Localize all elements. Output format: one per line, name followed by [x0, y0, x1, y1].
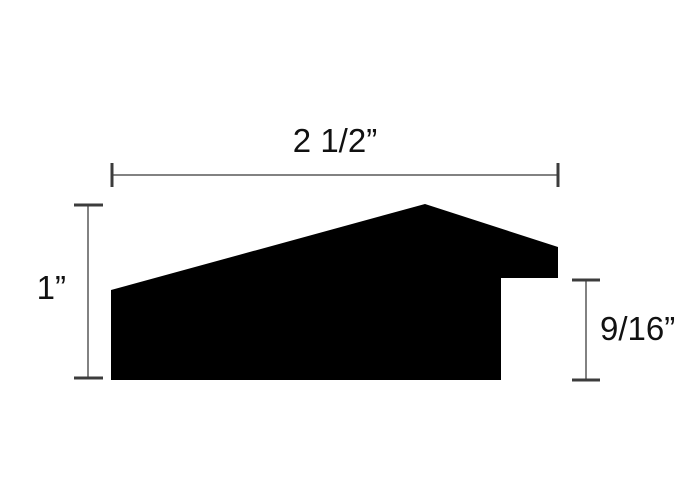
width-dimension-line: [112, 163, 558, 187]
rabbet-dimension-label: 9/16”: [600, 312, 675, 345]
moulding-profile-diagram: 2 1/2” 1” 9/16”: [0, 0, 700, 500]
rabbet-dimension-line: [572, 280, 600, 380]
height-dimension-line: [74, 205, 103, 378]
profile-drawing: [0, 0, 700, 500]
height-dimension-label: 1”: [0, 271, 66, 304]
moulding-profile-shape: [111, 204, 558, 380]
width-dimension-label: 2 1/2”: [111, 124, 559, 157]
